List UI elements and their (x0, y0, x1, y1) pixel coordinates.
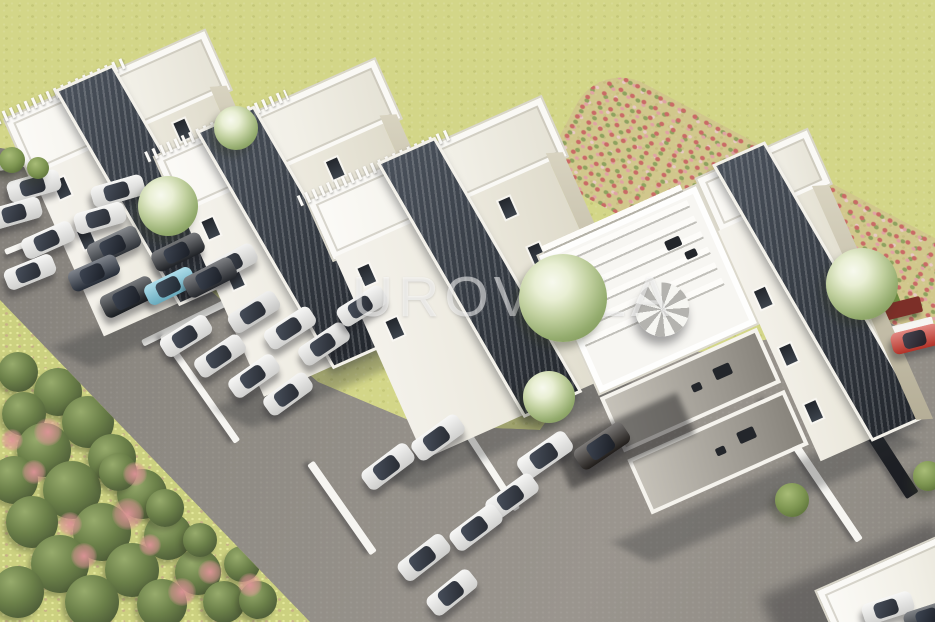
window (201, 217, 220, 239)
flower-patch (112, 498, 144, 530)
flower-patch (139, 534, 161, 556)
flower-patch (22, 460, 46, 484)
flower-patch (34, 418, 62, 446)
balcony-furniture (691, 381, 703, 392)
window (498, 197, 517, 219)
shrub (65, 575, 119, 622)
flower-patch (198, 560, 222, 584)
balcony-furniture (715, 445, 727, 456)
shrub (183, 523, 217, 557)
flower-patch (1, 429, 23, 451)
window (226, 267, 245, 289)
shrub (146, 489, 184, 527)
flower-patch (168, 578, 196, 606)
balcony-furniture (736, 426, 757, 444)
watermark-text: UROVILLA (352, 264, 674, 330)
window (779, 343, 798, 365)
flower-patch (123, 462, 147, 486)
shrub (0, 352, 38, 392)
balcony-furniture (712, 362, 733, 380)
window (804, 400, 823, 422)
window (754, 287, 773, 309)
shrub (0, 566, 44, 618)
flower-patch (238, 573, 262, 597)
aerial-residential-render: UROVILLA (0, 0, 935, 622)
window (77, 227, 96, 249)
flower-patch (58, 512, 82, 536)
flower-patch (71, 543, 97, 569)
window (53, 177, 72, 199)
